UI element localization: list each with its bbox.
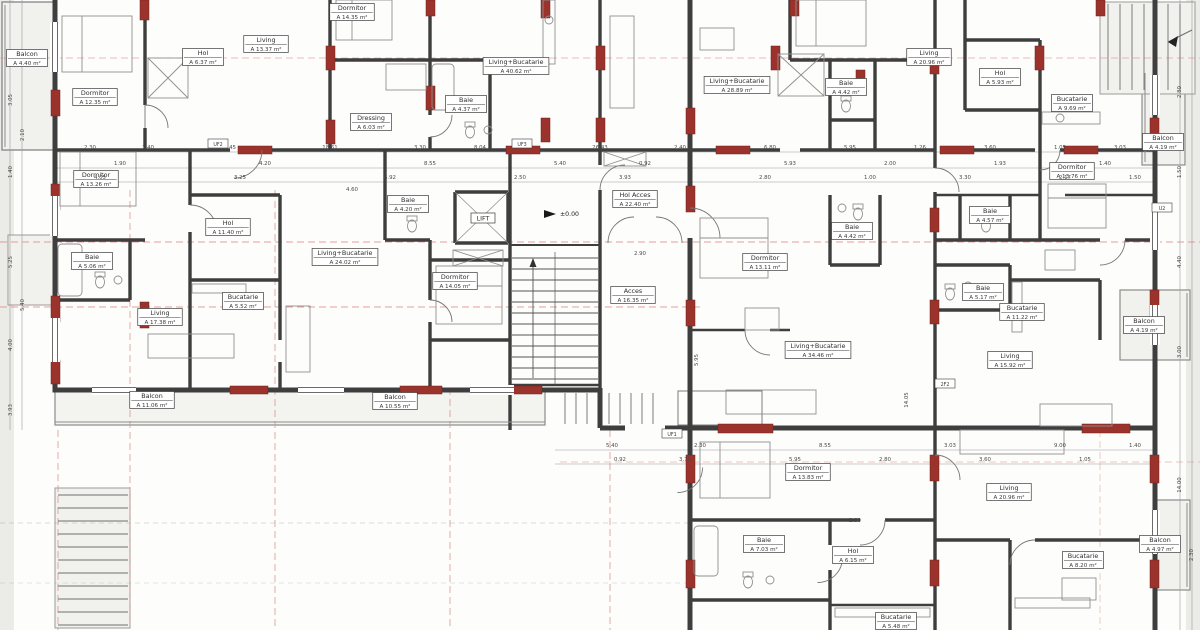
room-label-hol-br: HolA 6.15 m² [833,547,874,564]
room-area: A 14.35 m² [336,14,367,21]
room-area: A 11.22 m² [1006,314,1037,321]
room-area: A 4.57 m² [976,217,1004,224]
dimension-label: 3.93 [8,404,14,416]
room-area: A 16.35 m² [617,297,648,304]
dimension-label: 3.03 [1114,145,1126,151]
room-area: A 11.40 m² [212,229,243,236]
room-name: Baie [983,207,997,215]
room-name: Dormitor [441,273,470,281]
dimension-label: 8.55 [424,161,436,167]
room-area: A 13.26 m² [80,181,111,188]
room-name: Hol [198,49,209,57]
dimension-label: 3.60 [979,457,992,463]
tag-text: U2 [1159,206,1166,212]
opening-tag: UF3 [512,139,532,148]
room-name: Dormitor [1058,163,1087,171]
dimension-label: 3.60 [984,145,997,151]
room-label-bucatarie-br-1: BucatarieA 5.48 m² [876,613,917,630]
room-label-balcon-bl-2: BalconA 10.55 m² [373,393,418,410]
dimension-label: 5.25 [8,256,14,268]
room-area: A 15.92 m² [994,362,1025,369]
room-label-hol-acces: Hol AccesA 22.40 m² [613,191,658,208]
room-area: A 11.06 m² [136,402,167,409]
room-label-bucatarie-ml: BucatarieA 5.52 m² [223,293,264,310]
dimension-label: 2.80 [759,175,772,181]
room-area: A 4.42 m² [832,89,860,96]
room-name: Baie [401,196,415,204]
room-label-balcon-tl: BalconA 4.40 m² [7,50,48,67]
dimension-label: 4.40 [1177,255,1183,268]
room-area: A 14.05 m² [439,283,470,290]
room-name: Bucatarie [1057,95,1088,103]
dimension-label: 5.40 [554,161,567,167]
room-area: A 12.35 m² [79,99,110,106]
room-name: Baie [459,96,473,104]
dimension-label: 8.55 [819,443,831,449]
room-label-baie-tc: BaieA 4.42 m² [826,79,867,96]
room-name: Living+Bucatarie [489,58,544,66]
room-label-dormitor-tm: DormitorA 14.35 m² [330,4,375,21]
room-label-lift: LIFT [471,213,495,223]
room-label-living-bucatarie-tc: Living+BucatarieA 28.89 m² [704,77,770,94]
room-area: A 5.06 m² [78,263,106,270]
room-area: A 13.83 m² [792,474,823,481]
room-label-baie-br: BaieA 7.03 m² [744,536,785,553]
dimension-label: 1.26 [914,145,927,151]
dimension-label: 5.95 [844,145,856,151]
dimension-label: 3.93 [619,175,631,181]
room-label-balcon-bl-1: BalconA 11.06 m² [130,392,175,409]
dimension-label: 2.00 [884,161,897,167]
room-label-hol-tl: HolA 6.37 m² [183,49,224,66]
dimension-label: 2.30 [694,443,707,449]
dimension-label: 9.00 [1054,443,1067,449]
dimension-label: 1.40 [142,145,155,151]
room-name: Balcon [1152,134,1174,142]
floor-plan-svg: ±0.00 BalconA 4.40 m²DormitorA 12.35 m²H… [0,0,1200,630]
dimension-label: 1.90 [114,161,127,167]
room-name: Living+Bucatarie [791,342,846,350]
room-area: A 4.42 m² [838,233,866,240]
room-label-living-bucatarie-tm: Living+BucatarieA 40.62 m² [483,58,549,75]
dimension-label: 3.03 [944,443,956,449]
room-area: A 24.02 m² [329,259,360,266]
room-name: LIFT [477,214,490,222]
room-name: Bucatarie [881,613,912,621]
dimension-label: 5.95 [789,457,801,463]
room-area: A 22.40 m² [619,201,650,208]
opening-tag: U2 [1152,203,1172,212]
room-label-living-rr: LivingA 15.92 m² [988,352,1033,369]
room-label-dormitor-tr: DormitorA 13.76 m² [1050,163,1095,180]
room-label-hol-ml: HolA 11.40 m² [206,219,251,236]
room-label-baie-mm: BaieA 4.20 m² [388,196,429,213]
dimension-label: 14.05 [904,392,910,407]
room-area: A 5.93 m² [986,79,1014,86]
room-label-dormitor-mm: DormitorA 14.05 m² [433,273,478,290]
room-label-dormitor-mr: DormitorA 13.11 m² [743,254,788,271]
room-area: A 10.55 m² [379,403,410,410]
room-area: A 5.48 m² [882,623,910,630]
room-area: A 6.03 m² [357,124,385,131]
room-label-baie-ml: BaieA 5.06 m² [72,253,113,270]
room-area: A 4.97 m² [1146,546,1174,553]
room-name: Bucatarie [1068,552,1099,560]
dimension-label: 5.40 [20,298,26,311]
opening-tag: UF1 [662,429,682,438]
room-name: Living+Bucatarie [318,249,373,257]
room-name: Balcon [1149,536,1171,544]
dimension-label: 3.30 [959,175,972,181]
dimension-label: 5.95 [694,354,700,366]
room-name: Bucatarie [228,293,259,301]
tag-text: UF3 [517,142,526,148]
room-name: Dressing [357,114,385,122]
dimension-label: 1.93 [994,161,1006,167]
room-label-acces: AccesA 16.35 m² [611,287,656,304]
dimension-label: 4.20 [259,161,272,167]
room-name: Living [999,484,1018,492]
dimension-label: 3.05 [8,94,14,106]
room-label-living-br: LivingA 20.96 m² [987,484,1032,501]
dimension-label: 2.30 [1189,548,1195,561]
tag-text: 2F2 [941,382,950,388]
tag-text: UF2 [213,142,222,148]
room-label-balcon-rr: BalconA 4.19 m² [1124,317,1165,334]
room-label-baie-rr: BaieA 5.17 m² [963,284,1004,301]
dimension-label: 1.40 [8,165,14,178]
dimension-label: 3.75 [679,457,691,463]
room-label-hol-tr: HolA 5.93 m² [980,69,1021,86]
room-name: Balcon [384,393,406,401]
room-name: Hol [995,69,1006,77]
dimension-label: 4.00 [8,338,14,351]
dimension-label: 3.00 [1177,345,1183,358]
room-name: Baie [845,223,859,231]
room-area: A 9.69 m² [1058,105,1086,112]
room-name: Hol Acces [619,191,651,199]
room-name: Baie [757,536,771,544]
dimension-label: 6.92 [384,175,396,181]
room-label-dormitor-tl: DormitorA 12.35 m² [73,89,118,106]
room-name: Dormitor [794,464,823,472]
room-area: A 5.52 m² [229,303,257,310]
room-area: A 8.20 m² [1069,562,1097,569]
room-area: A 34.46 m² [802,352,833,359]
room-name: Living [1000,352,1019,360]
room-area: A 13.11 m² [749,264,780,271]
dimension-label: 1.50 [1129,175,1142,181]
dimension-label: 6.80 [764,145,777,151]
dimension-label: 5.93 [784,161,796,167]
room-area: A 4.40 m² [13,60,41,67]
room-area: A 6.15 m² [839,557,867,564]
room-name: Balcon [16,50,38,58]
dimension-label: 2.40 [674,145,687,151]
room-label-baie-rr-sus: BaieA 4.57 m² [970,207,1011,224]
room-name: Bucatarie [1007,304,1038,312]
dimension-label: 2.80 [849,518,862,524]
dimension-label: 2.80 [879,457,892,463]
room-label-dormitor-br: DormitorA 13.83 m² [786,464,831,481]
room-name: Baie [85,253,99,261]
level-marker-label: ±0.00 [560,211,579,218]
dimension-label: 2.17 [1059,175,1071,181]
room-name: Dormitor [751,254,780,262]
dimension-label: 2.10 [20,128,26,141]
room-name: Balcon [1133,317,1155,325]
room-name: Baie [976,284,990,292]
room-area: A 20.96 m² [913,59,944,66]
opening-tag: 2F2 [935,379,955,388]
room-label-bucatarie-br-2: BucatarieA 8.20 m² [1063,552,1104,569]
room-name: Living+Bucatarie [710,77,765,85]
room-area: A 4.19 m² [1130,327,1158,334]
room-area: A 4.20 m² [394,206,422,213]
dimension-label: 1.40 [1129,443,1142,449]
room-name: Living [256,36,275,44]
dimension-label: 1.05 [1054,145,1066,151]
dimension-label: 2.30 [84,145,97,151]
room-area: A 17.38 m² [144,319,175,326]
dimension-label: 4.60 [346,187,359,193]
room-area: A 20.96 m² [993,494,1024,501]
dimension-label: 1.40 [1099,161,1112,167]
room-area: A 28.89 m² [721,87,752,94]
room-label-bucatarie-tr: BucatarieA 9.69 m² [1052,95,1093,112]
dimension-label: 26.43 [592,145,607,151]
dimension-label: 3.25 [234,175,246,181]
room-name: Hol [223,219,234,227]
room-name: Baie [839,79,853,87]
room-name: Living [150,309,169,317]
room-name: Living [919,49,938,57]
dimension-label: 3.30 [414,145,427,151]
room-name: Dormitor [338,4,367,12]
room-name: Hol [848,547,859,555]
dimension-label: 2.50 [514,175,527,181]
room-label-baie-mr: BaieA 4.42 m² [832,223,873,240]
room-label-living-ml: LivingA 17.38 m² [138,309,183,326]
floor-plan-page: ±0.00 BalconA 4.40 m²DormitorA 12.35 m²H… [0,0,1200,630]
room-area: A 7.03 m² [750,546,778,553]
room-area: A 40.62 m² [500,68,531,75]
dimension-label: 2.80 [1177,85,1183,98]
dimension-label: 1.50 [1177,165,1183,178]
room-label-baie-tm: BaieA 4.37 m² [446,96,487,113]
room-area: A 13.37 m² [250,46,281,53]
dimension-label: 0.92 [614,457,626,463]
room-area: A 5.17 m² [969,294,997,301]
opening-tag: UF2 [208,139,228,148]
tag-text: UF1 [667,432,676,438]
room-label-bucatarie-rr: BucatarieA 11.22 m² [1000,304,1045,321]
room-name: Acces [624,287,643,295]
dimension-label: 8.04 [474,145,487,151]
dimension-label: 1.00 [864,175,877,181]
room-label-dressing-tm: DressingA 6.03 m² [351,114,392,131]
dimension-label: 1.05 [1079,457,1091,463]
room-label-balcon-tr: BalconA 4.19 m² [1143,134,1184,151]
room-name: Dormitor [81,89,110,97]
room-label-living-bucatarie-mr: Living+BucatarieA 34.46 m² [785,342,851,359]
dimension-label: 5.40 [606,443,619,449]
room-label-living-tr: LivingA 20.96 m² [907,49,952,66]
room-label-living-bucatarie-mm: Living+BucatarieA 24.02 m² [312,249,378,266]
dimension-label: 2.90 [634,251,647,257]
room-label-balcon-br: BalconA 4.97 m² [1140,536,1181,553]
dimension-label: 0.92 [639,161,651,167]
room-area: A 4.37 m² [452,106,480,113]
dimension-label: 18.61 [322,145,337,151]
room-name: Balcon [141,392,163,400]
dimension-label: 14.00 [1177,477,1183,493]
room-area: A 6.37 m² [189,59,217,66]
room-area: A 4.19 m² [1149,144,1177,151]
room-label-living-tl: LivingA 13.37 m² [244,36,289,53]
dimension-label: 4.05 [94,175,106,181]
